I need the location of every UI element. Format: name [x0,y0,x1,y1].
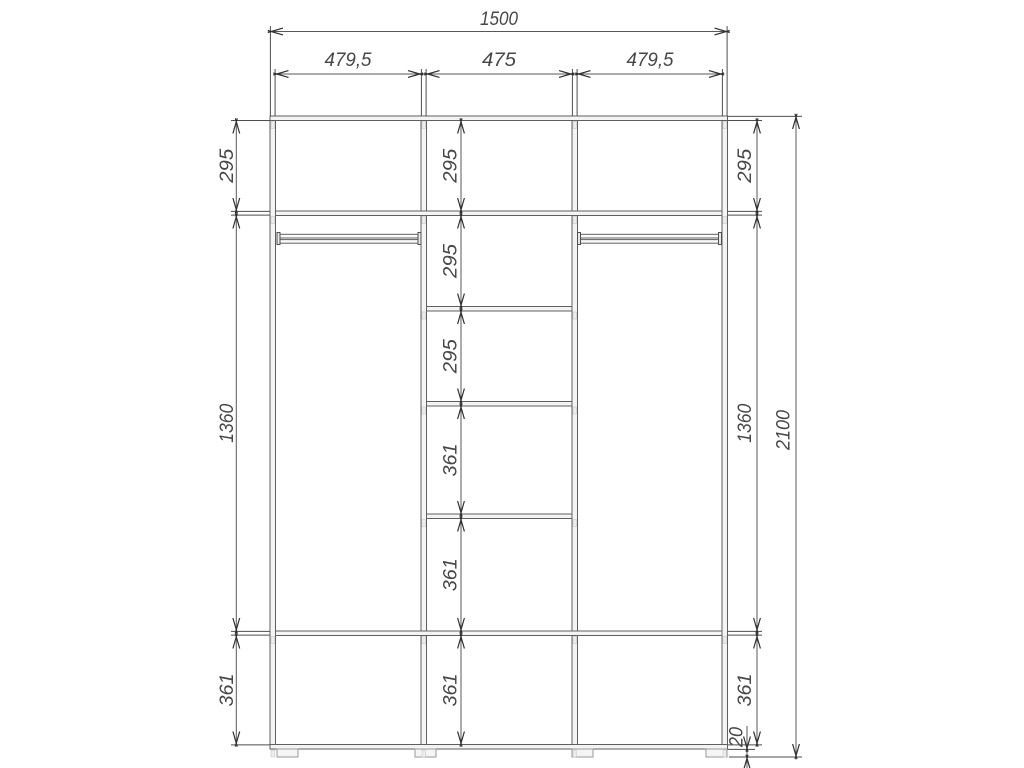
svg-text:295: 295 [441,339,462,375]
svg-text:479,5: 479,5 [325,50,372,71]
svg-text:1500: 1500 [480,9,518,30]
svg-text:20: 20 [727,727,748,748]
svg-text:295: 295 [217,148,238,184]
svg-text:475: 475 [482,50,516,71]
svg-text:1360: 1360 [217,403,238,442]
svg-text:361: 361 [441,444,462,477]
svg-text:295: 295 [441,148,462,184]
svg-text:479,5: 479,5 [627,50,674,71]
svg-text:295: 295 [735,148,756,184]
svg-text:361: 361 [441,674,462,707]
svg-text:361: 361 [217,674,238,707]
svg-text:295: 295 [441,244,462,280]
svg-text:361: 361 [735,674,756,707]
svg-text:2100: 2100 [774,410,795,451]
svg-text:361: 361 [441,558,462,591]
svg-text:1360: 1360 [735,403,756,442]
